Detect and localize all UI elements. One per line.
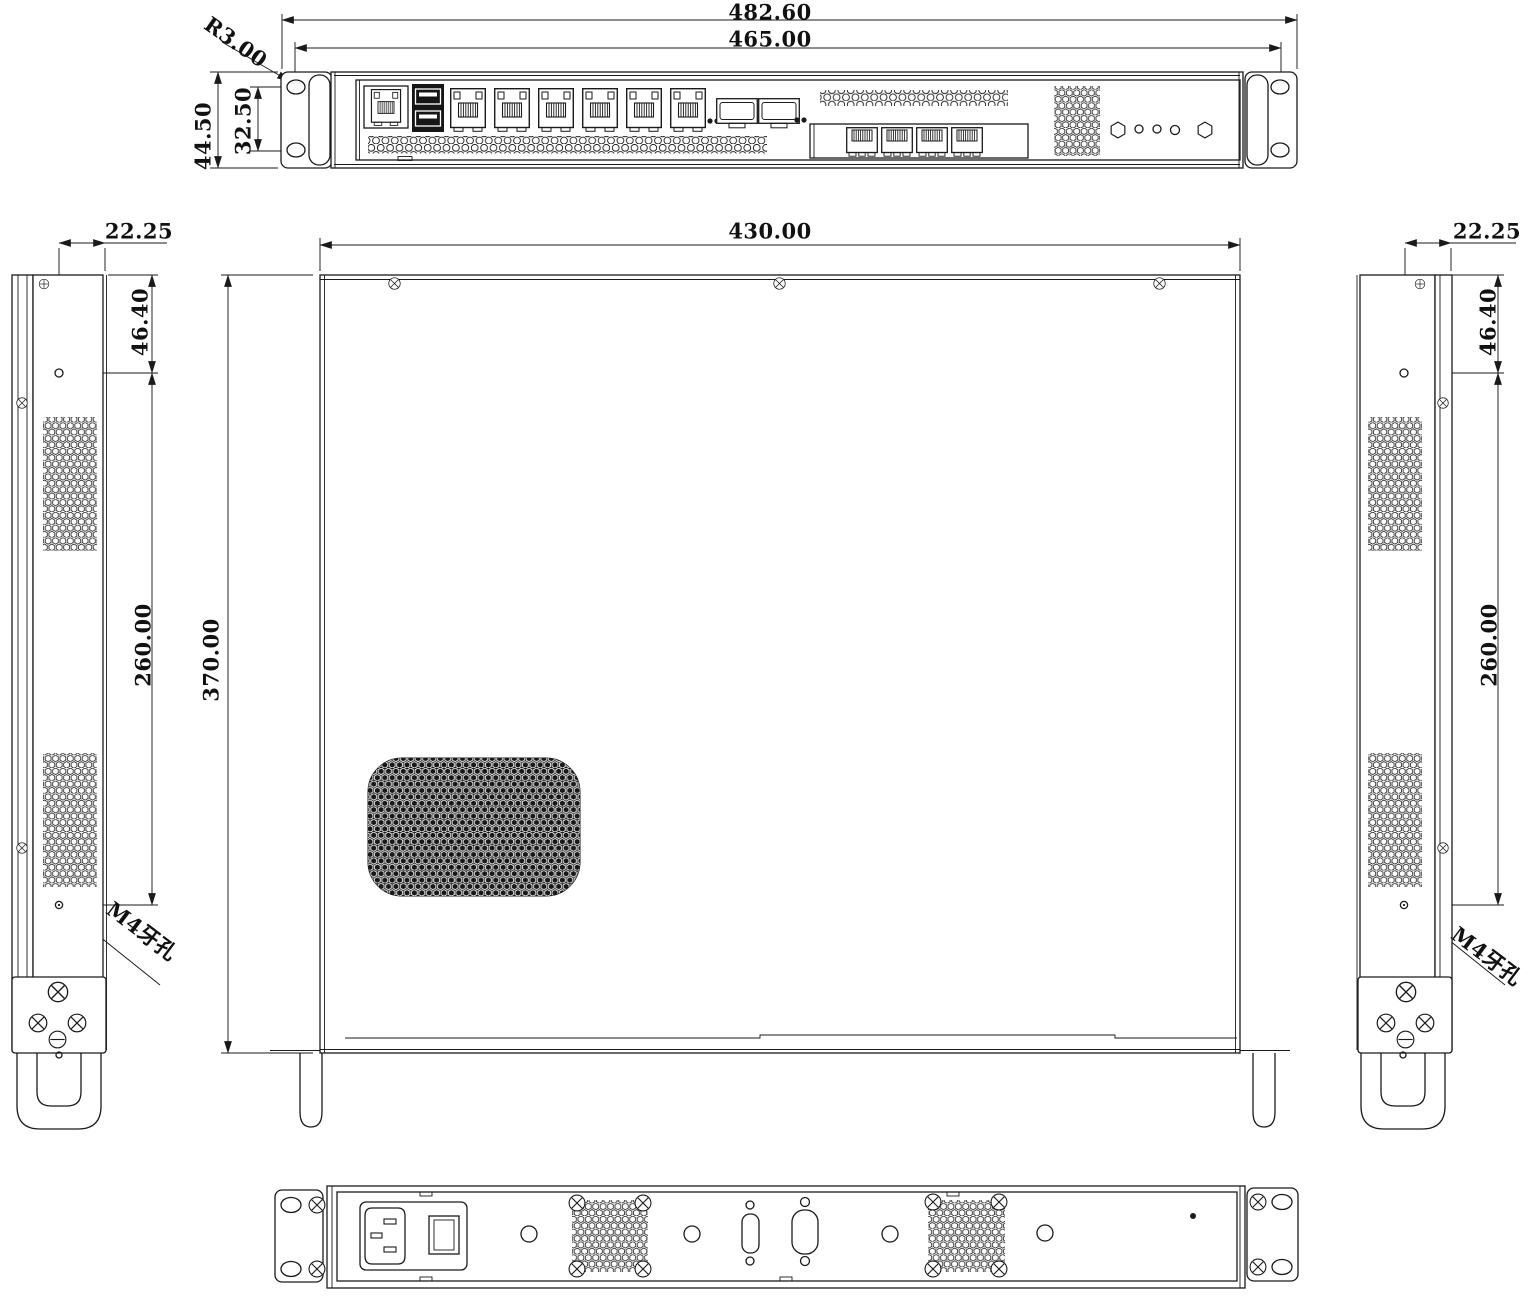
rj45-port-icon [952, 128, 983, 157]
ground-stud-icon [1190, 1213, 1196, 1219]
rj45-port-icon [917, 128, 948, 157]
left-bracket [12, 977, 106, 1053]
power-button-icon [1111, 122, 1125, 138]
dimension-label-slot-spacing: 32.50 [233, 87, 254, 155]
rear-fan-grille [925, 1194, 1007, 1277]
sfp-port-icon [759, 99, 800, 128]
screw-icon [991, 1194, 1007, 1210]
dimension-label-top-width: 430.00 [728, 221, 811, 242]
screw-icon [1377, 1014, 1395, 1032]
screw-icon [17, 398, 28, 409]
right-foot-handle [1361, 1052, 1445, 1129]
rj45-port-icon [882, 128, 913, 157]
screw-icon [635, 1195, 651, 1211]
side-panel [1360, 275, 1435, 1050]
screw-icon [309, 1197, 325, 1213]
rear-right-rack-ear [1247, 1188, 1298, 1281]
rj45-port-icon [539, 89, 574, 132]
screw-icon [1415, 279, 1425, 289]
rack-rail-strip [1435, 275, 1452, 1050]
screw-icon [1154, 278, 1165, 289]
screw-icon [1438, 398, 1449, 409]
side-panel [33, 275, 103, 1050]
rear-fan-grille [569, 1195, 651, 1277]
screw-icon [309, 1261, 325, 1277]
dimension-label-mounting-width: 465.00 [728, 29, 811, 50]
led-dot-icon [707, 118, 712, 123]
rj45-port-icon [495, 89, 530, 132]
screw-icon [635, 1261, 651, 1277]
sfp-port-icon [717, 99, 758, 128]
hex-vent-icon [1368, 417, 1422, 551]
antenna-mount-icon [1198, 122, 1212, 138]
dimension-label-right-front-distance: 46.40 [1478, 288, 1499, 356]
left-foot-handle [17, 1052, 101, 1129]
screw-icon [1396, 982, 1415, 1001]
vent-holes-row-icon [368, 136, 767, 154]
screw-icon [991, 1261, 1007, 1277]
front-left-rack-ear [281, 72, 332, 168]
fan-grille-icon [928, 1200, 1005, 1272]
dimension-label-left-front-distance: 46.40 [130, 288, 151, 356]
led-dot-icon [794, 117, 799, 122]
console-rj45-port-icon [371, 90, 400, 126]
rj45-port-icon [671, 89, 706, 132]
screw-icon [29, 1014, 47, 1032]
rj45-port-icon [451, 89, 486, 132]
screw-icon [68, 1014, 86, 1032]
led-dot-icon [801, 117, 806, 122]
slotted-screw-icon [1397, 1031, 1414, 1048]
rj45-port-icon [583, 89, 618, 132]
rj45-port-icon [847, 128, 878, 157]
screw-icon [17, 843, 28, 854]
screw-icon [1250, 1194, 1266, 1210]
dimension-label-left-pitch: 260.00 [133, 603, 154, 686]
dimension-label-front-height: 44.50 [193, 102, 214, 170]
front-right-rack-ear [1245, 72, 1297, 168]
screw-icon [39, 279, 49, 289]
top-cover [320, 275, 1240, 1053]
screw-icon [925, 1261, 941, 1277]
rack-ear-tab [300, 1053, 322, 1127]
screw-icon [925, 1194, 941, 1210]
top-view [221, 238, 1290, 1127]
rear-view [275, 1186, 1298, 1288]
rack-rail-strip [12, 275, 33, 1050]
rear-chassis [327, 1186, 1245, 1288]
screw-icon [389, 278, 400, 289]
rj45-port-icon [627, 89, 662, 132]
screw-icon [774, 278, 785, 289]
screw-icon [569, 1195, 585, 1211]
vent-holes-row-icon [820, 90, 1008, 106]
hex-vent-icon [1054, 86, 1100, 156]
slotted-screw-icon [49, 1031, 66, 1048]
screw-icon [1250, 1259, 1266, 1275]
hex-vent-icon [1368, 753, 1422, 887]
dimension-label-left-offset: 22.25 [105, 221, 173, 242]
hex-vent-icon [43, 753, 97, 887]
screw-icon [1438, 843, 1449, 854]
usb-ports-icon [412, 84, 444, 132]
screw-icon [1416, 1014, 1434, 1032]
dimension-label-right-pitch: 260.00 [1479, 603, 1500, 686]
screw-icon [48, 982, 67, 1001]
dimension-label-right-offset: 22.25 [1453, 221, 1521, 242]
hex-vent-icon [43, 417, 97, 551]
rack-ear-tab [1253, 1053, 1275, 1127]
right-bracket [1358, 977, 1452, 1053]
dimension-label-top-depth: 370.00 [201, 618, 222, 701]
drawing-linework [0, 0, 1529, 1306]
screw-icon [569, 1261, 585, 1277]
dimension-label-overall-width: 482.60 [728, 2, 811, 23]
mechanical-drawing-canvas: 482.60 465.00 R3.00 44.50 32.50 430.00 3… [0, 0, 1529, 1306]
fan-grille-icon [572, 1200, 648, 1272]
